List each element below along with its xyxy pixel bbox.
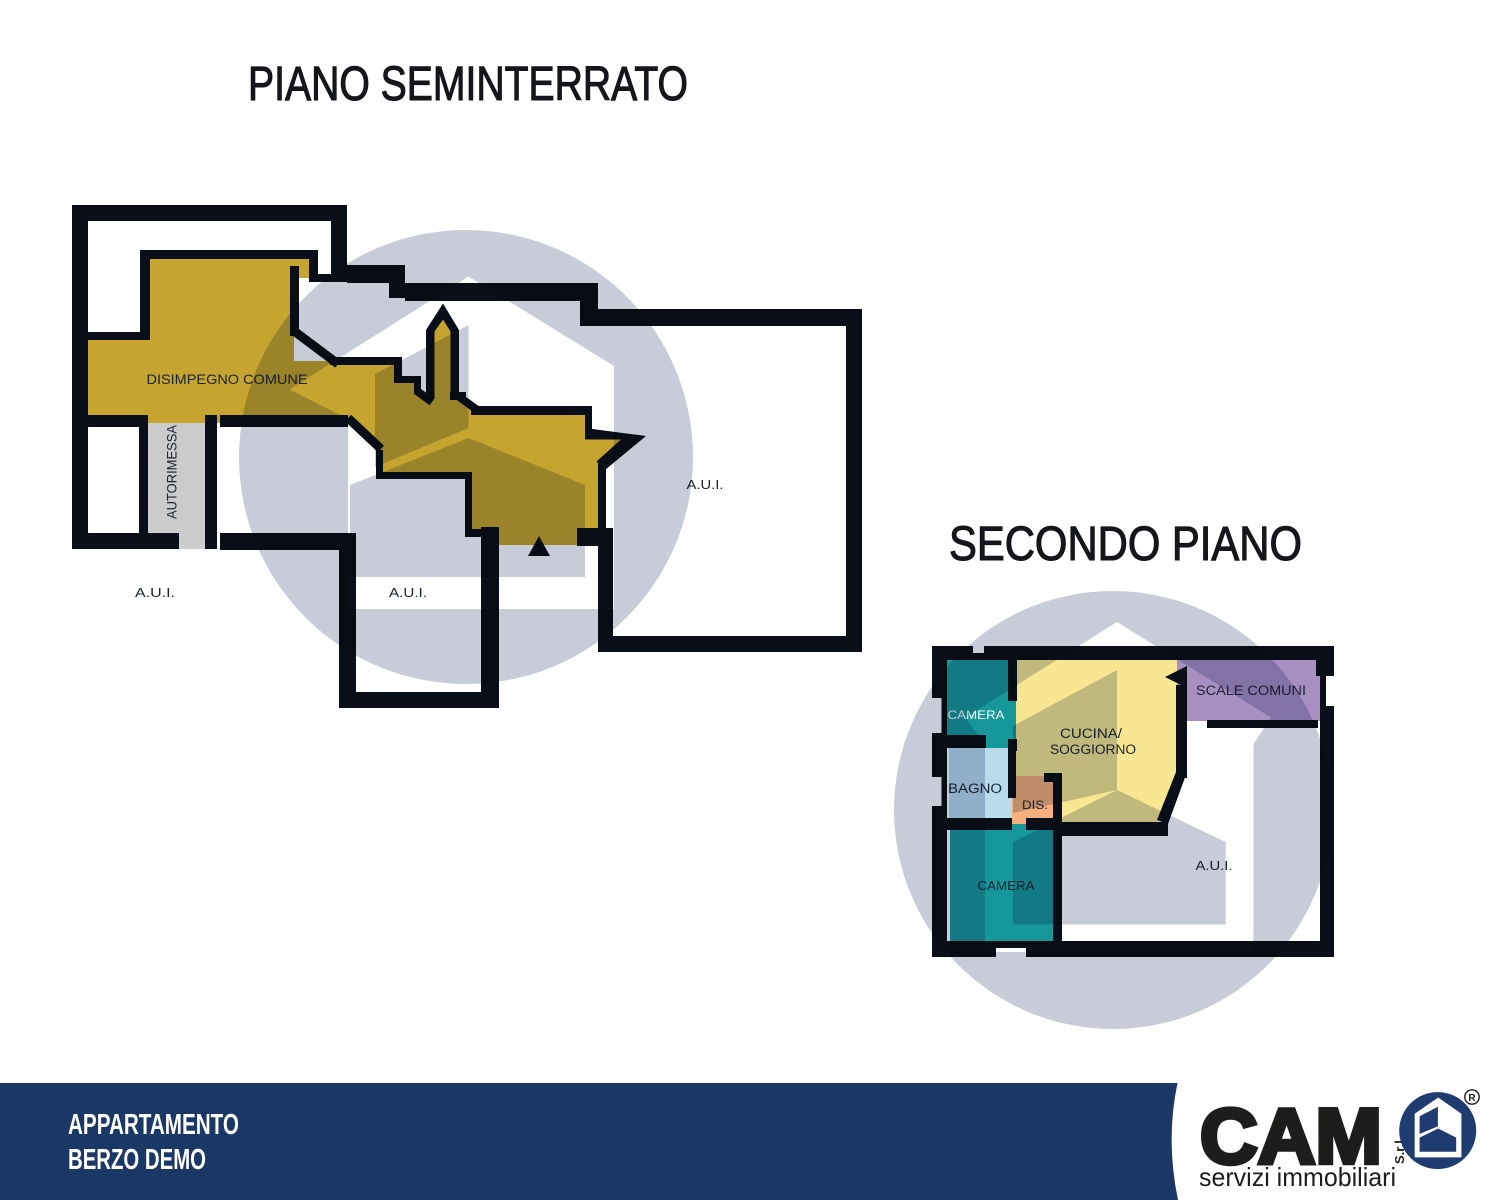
svg-text:SECONDO PIANO: SECONDO PIANO (949, 518, 1302, 571)
svg-text:R: R (1468, 1093, 1476, 1104)
svg-text:A.U.I.: A.U.I. (135, 585, 175, 600)
svg-text:AUTORIMESSA: AUTORIMESSA (164, 424, 180, 519)
svg-text:BERZO DEMO: BERZO DEMO (68, 1144, 206, 1176)
svg-text:A.U.I.: A.U.I. (687, 477, 724, 492)
svg-text:servizi immobiliari: servizi immobiliari (1199, 1162, 1396, 1192)
svg-text:PIANO SEMINTERRATO: PIANO SEMINTERRATO (248, 58, 688, 111)
svg-text:APPARTAMENTO: APPARTAMENTO (68, 1109, 239, 1141)
